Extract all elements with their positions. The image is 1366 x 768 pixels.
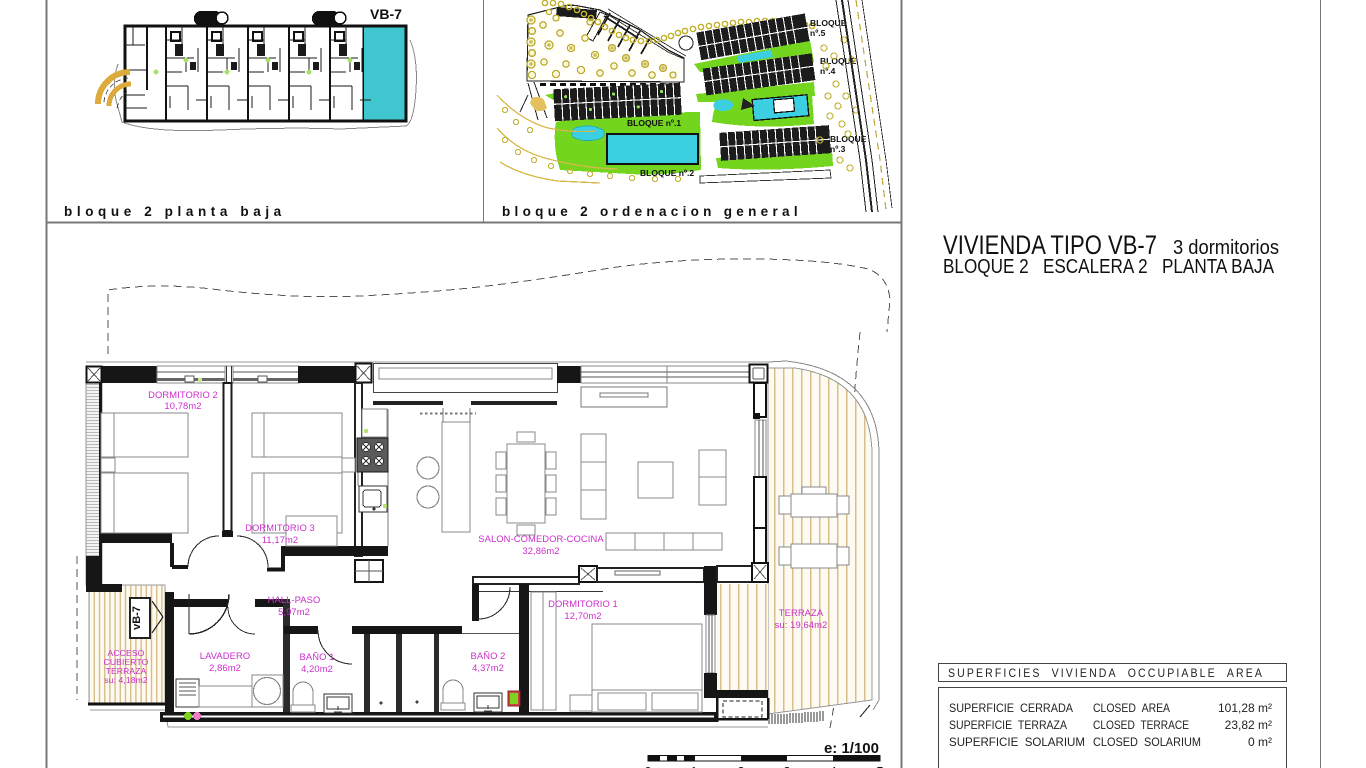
svg-text:nº.5: nº.5 <box>810 28 826 38</box>
svg-text:BLOQUE nº.1: BLOQUE nº.1 <box>627 118 681 128</box>
svg-text:4,37m2: 4,37m2 <box>472 662 504 673</box>
svg-text:0 m²: 0 m² <box>1248 735 1272 749</box>
svg-text:nº.4: nº.4 <box>820 66 836 76</box>
svg-text:SUPERFICIE SOLARIUM: SUPERFICIE SOLARIUM <box>949 735 1085 749</box>
svg-text:SALON-COMEDOR-COCINA: SALON-COMEDOR-COCINA <box>478 533 604 544</box>
svg-text:12,70m2: 12,70m2 <box>564 610 601 621</box>
svg-text:TERRAZA: TERRAZA <box>779 607 824 618</box>
svg-text:BLOQUE: BLOQUE <box>810 18 847 28</box>
svg-text:23,82 m²: 23,82 m² <box>1225 718 1272 732</box>
svg-text:SUPERFICIE CERRADA: SUPERFICIE CERRADA <box>949 701 1073 715</box>
svg-text:DORMITORIO 2: DORMITORIO 2 <box>148 389 218 400</box>
svg-text:BLOQUE 2 ESCALERA 2 PLANTA: BLOQUE 2 ESCALERA 2 PLANTA BAJA <box>943 256 1275 278</box>
svg-text:SUPERFICIES VIVIENDA OCCUPIA: SUPERFICIES VIVIENDA OCCUPIABLE AREA <box>948 666 1264 680</box>
svg-text:1: 1 <box>690 764 697 768</box>
svg-text:BAÑO 1: BAÑO 1 <box>300 651 335 662</box>
svg-text:5: 5 <box>876 764 883 768</box>
svg-text:bloque 2 planta baja: bloque 2 planta baja <box>64 204 286 219</box>
svg-text:VB-7: VB-7 <box>370 6 402 22</box>
svg-text:su: 19,64m2: su: 19,64m2 <box>775 619 828 630</box>
svg-text:bloque 2 ordenacion general: bloque 2 ordenacion general <box>502 204 802 219</box>
svg-text:BAÑO 2: BAÑO 2 <box>471 650 506 661</box>
svg-text:SUPERFICIE TERRAZA: SUPERFICIE TERRAZA <box>949 718 1067 732</box>
svg-text:vB-7: vB-7 <box>131 606 143 630</box>
svg-text:4: 4 <box>829 764 836 768</box>
svg-text:4,20m2: 4,20m2 <box>301 663 333 674</box>
svg-text:CLOSED SOLARIUM: CLOSED SOLARIUM <box>1093 735 1201 749</box>
svg-text:10,78m2: 10,78m2 <box>164 400 201 411</box>
svg-text:32,86m2: 32,86m2 <box>522 545 559 556</box>
svg-text:101,28 m²: 101,28 m² <box>1218 701 1272 715</box>
svg-text:3: 3 <box>783 764 790 768</box>
svg-text:5,97m2: 5,97m2 <box>278 606 310 617</box>
svg-text:BLOQUE nº.2: BLOQUE nº.2 <box>640 168 694 178</box>
svg-text:nº.3: nº.3 <box>830 144 846 154</box>
svg-text:CLOSED TERRACE: CLOSED TERRACE <box>1093 718 1189 732</box>
svg-text:DORMITORIO 1: DORMITORIO 1 <box>548 598 618 609</box>
svg-text:e: 1/100: e: 1/100 <box>824 740 879 757</box>
svg-text:11,17m2: 11,17m2 <box>262 534 299 545</box>
svg-text:BLOQUE: BLOQUE <box>830 134 867 144</box>
svg-text:DORMITORIO 3: DORMITORIO 3 <box>245 522 315 533</box>
svg-text:CLOSED AREA: CLOSED AREA <box>1093 701 1170 715</box>
svg-text:0: 0 <box>644 764 651 768</box>
svg-text:2,86m2: 2,86m2 <box>209 662 241 673</box>
svg-text:su: 4,18m2: su: 4,18m2 <box>104 675 148 685</box>
svg-text:2: 2 <box>737 764 744 768</box>
svg-text:HALL-PASO: HALL-PASO <box>268 594 321 605</box>
svg-text:LAVADERO: LAVADERO <box>200 650 250 661</box>
